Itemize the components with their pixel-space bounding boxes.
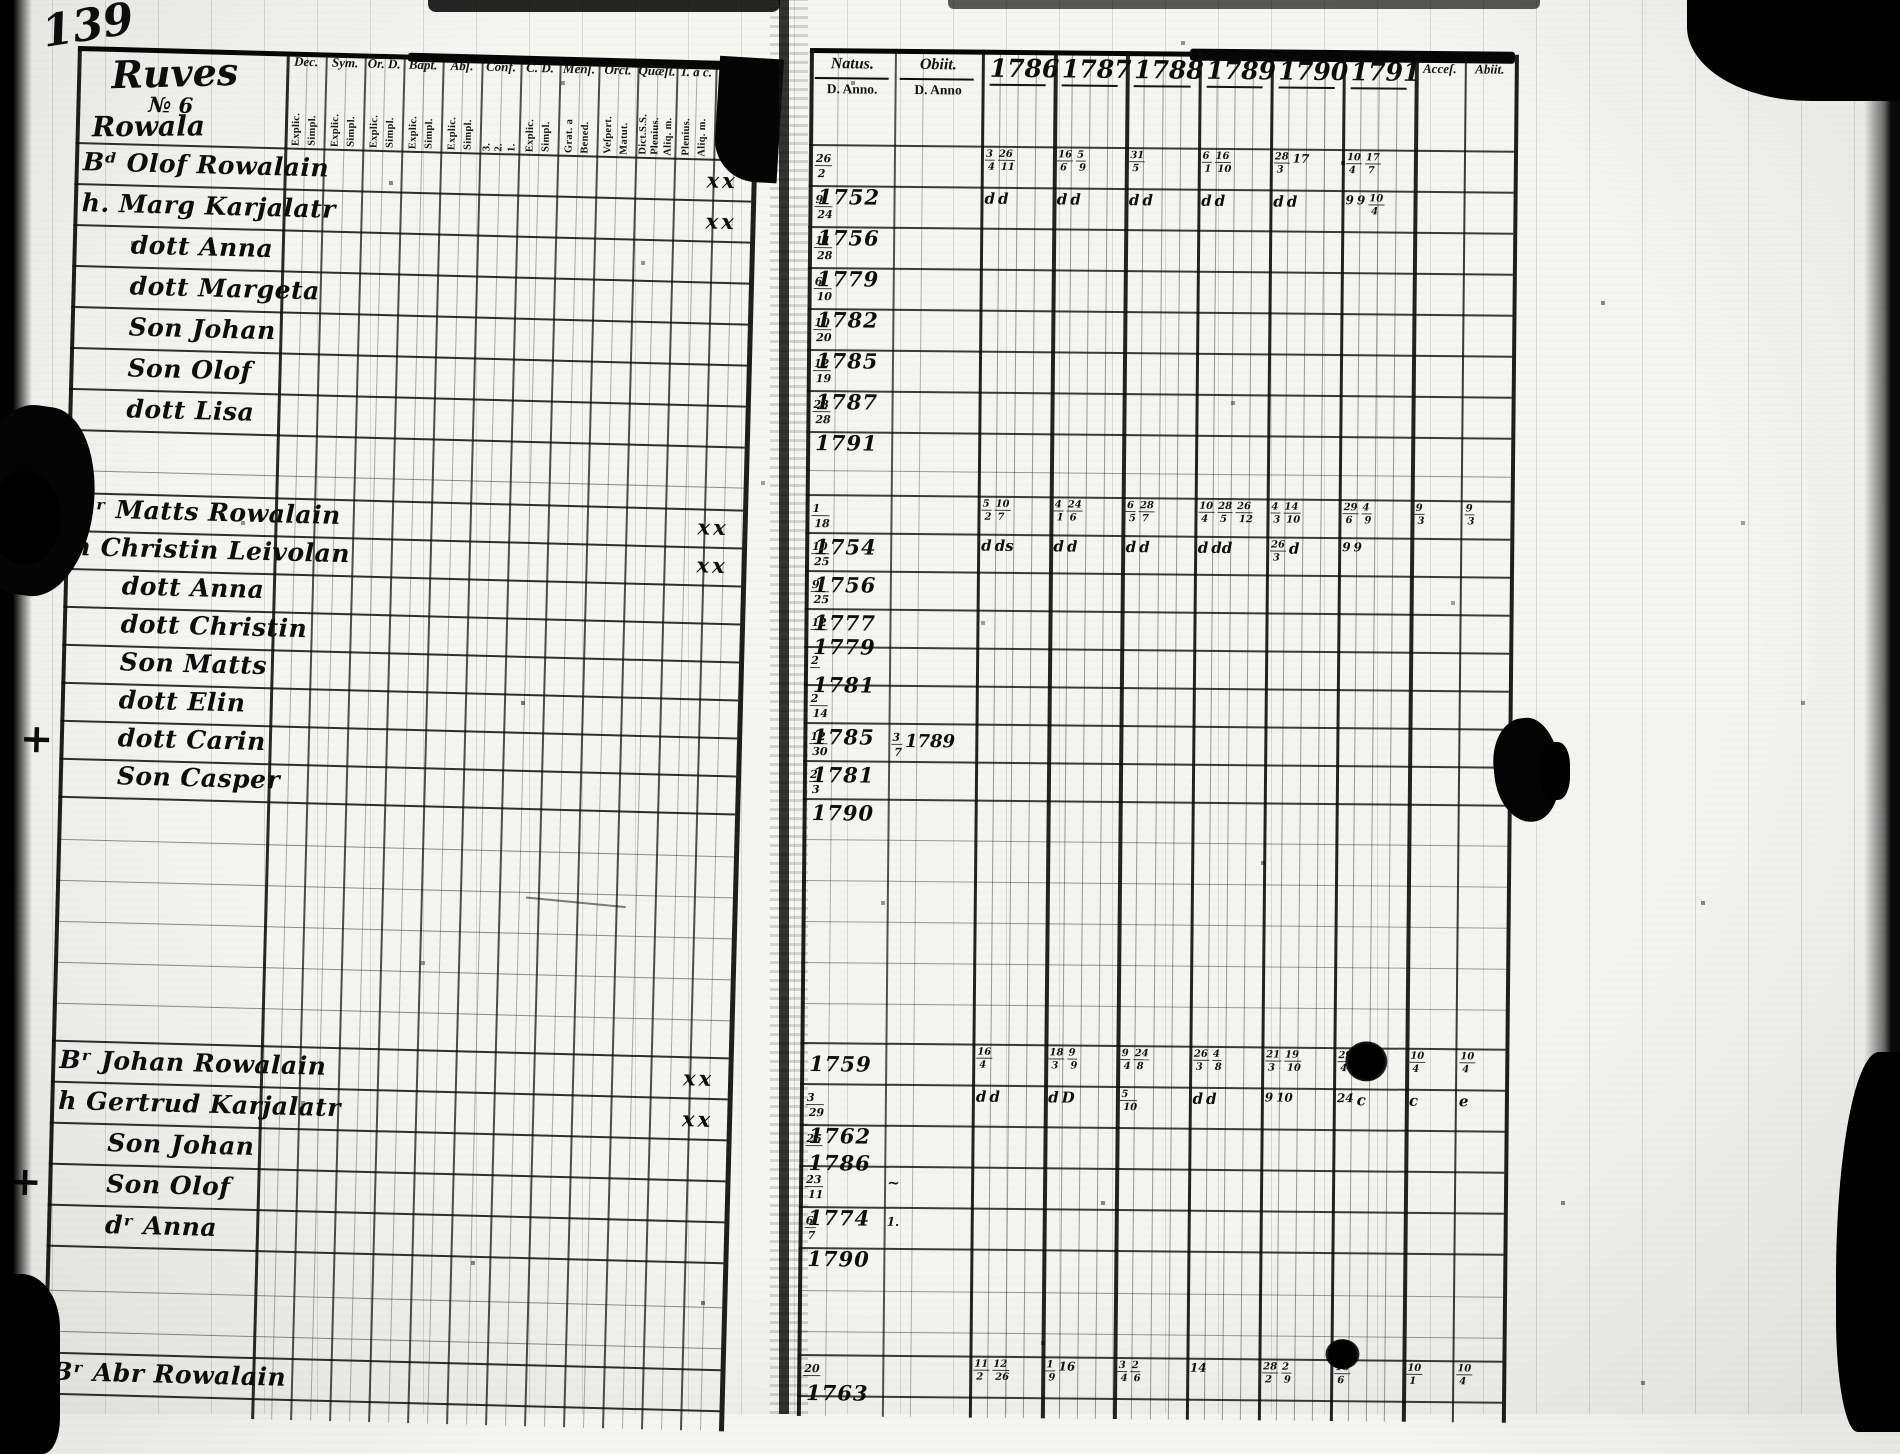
mark-fraction: 1610 <box>1214 151 1231 175</box>
grid-vline <box>388 55 425 1423</box>
column-subheader: 3. <box>481 142 492 151</box>
grid-vline <box>1023 50 1037 1418</box>
mark-fraction: 104 <box>1456 1363 1472 1387</box>
abiit-cell: e <box>1459 1092 1503 1110</box>
mark-fraction-top: 10 <box>1198 501 1214 513</box>
mark-fraction-top: 12 <box>992 1359 1009 1371</box>
abiit-header: Abiit. <box>1465 61 1515 77</box>
ditto-mark: d <box>1206 1090 1217 1108</box>
natus-date: 201763 <box>803 1362 879 1406</box>
mark-fraction: 2612 <box>1236 501 1253 525</box>
grid-vline <box>1041 50 1058 1418</box>
mark-fraction: 1128 <box>814 234 833 262</box>
ditto-mark: c <box>1409 1092 1418 1110</box>
mark-year: 1789 <box>905 731 955 752</box>
thumb-shadow-inner <box>0 470 60 565</box>
ditto-mark: c <box>1357 1091 1366 1109</box>
grid-vline <box>329 54 366 1422</box>
mark-fraction: 610 <box>814 275 833 303</box>
year-cell-1790: 431410 <box>1270 501 1334 525</box>
mark-fraction: 329 <box>806 1091 825 1119</box>
mark-fraction-bottom: 1 <box>1057 512 1064 523</box>
mark-fraction-bottom: 19 <box>816 372 831 385</box>
mark-fraction-bottom: 24 <box>817 208 832 221</box>
mark: 9 <box>1342 540 1350 554</box>
mark-fraction-bottom: 5 <box>1220 513 1233 524</box>
entry-name: dott Anna <box>130 230 273 263</box>
ditto-mark: d <box>1273 192 1284 210</box>
grid-vline <box>1005 50 1019 1418</box>
column-subheader: Grat. a <box>563 119 575 153</box>
mark-fraction-bottom: 11 <box>808 1188 823 1201</box>
entry-name: dott Elin <box>119 685 246 717</box>
mark-fraction: 924 <box>814 193 833 221</box>
mark-fraction-bottom: 6 <box>1134 1373 1141 1384</box>
obiit-anno-subheader: D. Anno <box>895 82 982 99</box>
grid-hline <box>56 880 733 899</box>
entry-name: Bʳ Matts Rowalain <box>74 494 342 530</box>
mark-fraction-top: 9 <box>1067 1048 1077 1060</box>
mark-fraction-top: 1 <box>812 502 830 516</box>
ditto-mark: e <box>1459 1092 1469 1110</box>
year-cell-1787: 18399 <box>1048 1047 1112 1071</box>
natus-date: 231790 <box>809 768 886 825</box>
mark-fraction-bottom: 10 <box>1287 1062 1301 1073</box>
mark-fraction-top: 16 <box>976 1047 992 1059</box>
column-subheader: Explic. <box>290 112 302 146</box>
grid-hline <box>68 429 745 449</box>
mark: 9 <box>1345 193 1353 207</box>
mark-fraction: 48 <box>1212 1049 1222 1073</box>
acces-header: Acceſ. <box>1415 61 1465 77</box>
mark-fraction: 164 <box>976 1047 992 1071</box>
mark: 10 <box>1276 1091 1293 1105</box>
right-page: Natus. Obiit. D. Anno. D. Anno Acceſ. Ab… <box>797 48 1515 1423</box>
entry-name: Bᵈ Olof Rowalain <box>83 147 330 182</box>
mark-fraction-bottom: 20 <box>816 331 831 344</box>
grid-vline <box>1077 51 1091 1419</box>
mark-fraction-bottom: 4 <box>979 1059 992 1070</box>
mark-fraction-bottom: 7 <box>808 1229 816 1242</box>
mark-fraction-bottom: 4 <box>1462 1064 1475 1075</box>
ditto-mark: ~ <box>887 1174 900 1192</box>
mark-fraction: 510 <box>1120 1089 1137 1113</box>
mark-fraction-top: 10 <box>1368 193 1384 205</box>
column-subheader: Simpl. <box>346 116 358 147</box>
mark-fraction-top: 26 <box>1270 539 1286 551</box>
grid-vline <box>1452 54 1467 1422</box>
mark-fraction-top: 26 <box>815 152 832 166</box>
mark-fraction: 41 <box>1054 499 1064 523</box>
natus-header: Natus. <box>810 55 895 74</box>
entry-name: dʳ Anna <box>105 1210 218 1242</box>
mark-fraction-bottom: 2 <box>976 1371 989 1382</box>
grid-vline <box>660 62 697 1430</box>
mark-fraction-top: 25 <box>805 1132 822 1146</box>
grid-vline <box>544 59 581 1427</box>
mark-fraction-top: 24 <box>1134 1048 1150 1060</box>
column-subheader: Dict.S.S. <box>637 114 649 155</box>
mark-fraction: 26 <box>1131 1360 1141 1384</box>
acces-cell: 104 <box>1409 1051 1453 1075</box>
ditto-mark: d <box>1070 191 1081 209</box>
mark-fraction-bottom: 4 <box>1121 1373 1128 1384</box>
year-cell-1787: 1916 <box>1045 1359 1109 1383</box>
mark-fraction: 315 <box>1129 150 1145 174</box>
mark-fraction: 177 <box>1365 152 1381 176</box>
scan-smudge-top-left <box>428 0 780 12</box>
mark-fraction-top: 28 <box>1217 501 1233 513</box>
mark-fraction-bottom: 8 <box>1137 1061 1150 1072</box>
grid-vline <box>1402 54 1419 1422</box>
entry-name: Bʳ Johan Rowalain <box>59 1045 327 1081</box>
year-cell-1789: ddd <box>1198 539 1262 558</box>
grid-vline <box>485 58 522 1426</box>
mark-fraction-top: 3 <box>806 1091 824 1105</box>
acces-cell: 101 <box>1406 1363 1450 1387</box>
grid-vline <box>1095 51 1109 1419</box>
grid-vline <box>1348 53 1362 1421</box>
ditto-mark: d <box>1289 540 1300 558</box>
grid-hline <box>45 1290 722 1309</box>
mark-fraction-top: 17 <box>1365 152 1381 164</box>
mark-fraction-bottom: 7 <box>1142 513 1155 524</box>
mark-fraction: 93 <box>1414 503 1424 527</box>
ditto-mark: d <box>1057 190 1068 208</box>
grid-vline <box>271 52 308 1420</box>
ditto-mark: d <box>1215 192 1226 210</box>
grid-vline <box>1384 54 1398 1422</box>
mark-fraction-bottom: 6 <box>1337 1375 1350 1386</box>
grid-vline <box>1258 52 1275 1420</box>
mark-fraction-top: 4 <box>1270 501 1280 513</box>
mark-fraction-bottom: 4 <box>1371 206 1384 217</box>
year-cell-1788: 315 <box>1129 150 1193 174</box>
entry-name: Bʳ Abr Rowalain <box>51 1357 287 1392</box>
ditto-mark: dd <box>1211 539 1232 557</box>
mark-fraction: 214 <box>810 692 829 720</box>
mark-fraction: 285 <box>1217 501 1233 525</box>
mark-fraction: 248 <box>1134 1048 1150 1072</box>
mark-fraction: 1226 <box>992 1359 1009 1383</box>
mark-fraction-bottom: 10 <box>1123 1102 1137 1113</box>
grid-vline <box>1113 51 1130 1419</box>
mark-fraction-top: 11 <box>973 1359 989 1371</box>
ditto-mark: d <box>1142 191 1153 209</box>
mark: 17 <box>1293 152 1310 166</box>
mark: 9 <box>1354 540 1362 554</box>
mark-fraction: 283 <box>1274 151 1290 175</box>
communion-xx-mark: xx <box>696 552 728 578</box>
mark-fraction-bottom: 30 <box>812 745 827 758</box>
mark-fraction-bottom: 4 <box>1124 1061 1131 1072</box>
year-cell-1789: 26348 <box>1193 1049 1257 1073</box>
column-subheader: Matut. <box>619 122 631 155</box>
ditto-mark: d <box>1198 539 1209 557</box>
grid-vline <box>1294 53 1308 1421</box>
mark-fraction-bottom: 4 <box>1201 513 1214 524</box>
ditto-mark: D <box>1062 1088 1075 1106</box>
grid-vline <box>1185 52 1202 1420</box>
year-cell-1791: 99 <box>1342 540 1406 555</box>
ditto-mark: d <box>1192 1090 1203 1108</box>
mark-fraction: 19 <box>1045 1359 1055 1383</box>
ditto-mark: d <box>981 537 992 555</box>
acces-cell: c <box>1409 1092 1453 1110</box>
mark-fraction: 101 <box>1406 1363 1422 1387</box>
year-cell-1786: 342611 <box>985 149 1049 173</box>
mark-fraction-bottom: 10 <box>1286 514 1300 525</box>
grid-hline <box>43 1393 720 1413</box>
binding-gutter-texture <box>770 0 808 1414</box>
mark-fraction: 263 <box>1193 1049 1209 1073</box>
abiit-cell: 93 <box>1464 503 1508 527</box>
year-cell-1789: 1042852612 <box>1198 501 1262 525</box>
entry-name: dott Margeta <box>129 271 320 305</box>
grid-vline <box>524 59 561 1427</box>
mark-fraction: 287 <box>1139 500 1155 524</box>
year-cell-1788: dd <box>1129 191 1193 210</box>
left-page: Ruves № 6 Rowala Dec.Explic.Simpl.Sym.Ex… <box>42 46 778 1432</box>
mark-fraction-top: 2 <box>1131 1360 1141 1372</box>
natus-date: 671790 <box>804 1214 881 1271</box>
mark: 9 <box>1265 1090 1273 1104</box>
grid-vline <box>1131 51 1145 1419</box>
mark-fraction-top: 9 <box>811 578 829 592</box>
year-cell-1789: dd <box>1192 1090 1256 1109</box>
mark-fraction: 183 <box>1048 1047 1064 1071</box>
mark-fraction-top: 5 <box>1076 150 1086 162</box>
grid-vline <box>719 64 760 1432</box>
mark-fraction-bottom: 9 <box>1070 1060 1077 1071</box>
ink-blot-1790 <box>1325 1339 1359 1369</box>
obiit-header: Obiit. <box>895 56 982 75</box>
mark-fraction-bottom: 3 <box>812 783 820 796</box>
column-subheader: Simpl. <box>385 117 397 148</box>
column-subheader: Explic. <box>329 113 341 147</box>
mark-fraction: 59 <box>1076 150 1086 174</box>
mark-fraction-bottom: 28 <box>817 249 832 262</box>
mark-fraction-bottom: 3 <box>1273 552 1286 563</box>
mark-fraction-top: 29 <box>1343 502 1359 514</box>
mark-fraction: 2611 <box>998 149 1015 173</box>
mark-fraction: 65 <box>1126 500 1136 524</box>
year-cell-1791: 29649 <box>1342 502 1406 526</box>
mark-fraction: 166 <box>1057 149 1073 173</box>
natus-date: 1759 <box>806 1050 882 1077</box>
year-cell-1787: dd <box>1053 537 1117 556</box>
abiit-cell: 104 <box>1459 1051 1503 1075</box>
mark-fraction-bottom: 6 <box>1070 512 1083 523</box>
year-cell-1787: 16659 <box>1057 149 1121 173</box>
mark-fraction: 112 <box>973 1359 989 1383</box>
entry-name: dott Anna <box>122 571 265 604</box>
mark-fraction-top: 2 <box>810 692 828 706</box>
mark-fraction-bottom: 2 <box>1265 1374 1278 1385</box>
mark-fraction: 104 <box>1409 1051 1425 1075</box>
mark: 14 <box>1190 1361 1207 1375</box>
mark-fraction-top: 10 <box>1409 1051 1425 1063</box>
grid-vline <box>1276 53 1290 1421</box>
grid-vline <box>446 57 483 1425</box>
ditto-mark: d <box>1053 537 1064 555</box>
mark-fraction: 49 <box>1361 502 1371 526</box>
grid-vline <box>505 58 542 1426</box>
mark-fraction: 99 <box>1067 1048 1077 1072</box>
mark-fraction-top: 10 <box>1406 1363 1422 1375</box>
mark-fraction-bottom: 4 <box>1349 165 1362 176</box>
natus-date: 251786 <box>805 1132 881 1176</box>
mark-fraction-top: 6 <box>1202 151 1212 163</box>
grid-vline <box>1222 52 1236 1420</box>
mark-fraction: 104 <box>1368 193 1384 217</box>
margin-cross: + <box>19 715 54 763</box>
year-cell-1788: 510 <box>1120 1089 1184 1113</box>
mark-fraction-bottom: 3 <box>1417 515 1424 526</box>
mark-fraction: 1410 <box>1283 502 1300 526</box>
mark-fraction: 37 <box>891 731 902 759</box>
grid-hline <box>44 1331 721 1350</box>
mark-fraction-top: 6 <box>1126 500 1136 512</box>
entry-name: Son Casper <box>117 761 281 794</box>
year-cell-1786: 1121226 <box>973 1359 1037 1383</box>
mark-fraction-top: 9 <box>1121 1048 1131 1060</box>
mark-fraction: 29 <box>1281 1362 1291 1386</box>
mark-fraction-top: 14 <box>1283 502 1300 514</box>
mark-fraction-top: 12 <box>810 616 827 630</box>
obiit-date: 371789 <box>891 731 971 759</box>
mark: 1. <box>887 1215 900 1229</box>
communion-xx-mark: xx <box>683 1065 715 1091</box>
mark-fraction-top: 28 <box>1262 1361 1278 1373</box>
mark-fraction: 25 <box>805 1132 822 1146</box>
mark-fraction-bottom: 28 <box>815 413 830 426</box>
mark-fraction: 34 <box>1118 1360 1128 1384</box>
abiit-cell: 104 <box>1456 1363 1500 1387</box>
year-cell-1790: 28317 <box>1274 151 1338 175</box>
mark-fraction: 107 <box>994 499 1010 523</box>
mark-fraction-bottom: 4 <box>1412 1063 1425 1074</box>
year-cell-1790: dd <box>1273 192 1337 211</box>
mark-fraction-top: 18 <box>1048 1047 1064 1059</box>
natus-year: 1790 <box>807 1246 870 1272</box>
entry-name: Son Johan <box>107 1128 255 1161</box>
mark-fraction-top: 4 <box>1054 499 1064 511</box>
entry-name: dott Lisa <box>126 394 255 426</box>
mark-fraction-bottom: 1 <box>1409 1375 1422 1386</box>
mark-fraction-top: 10 <box>1346 152 1362 164</box>
mark-fraction-bottom: 3 <box>1051 1060 1064 1071</box>
grid-vline <box>368 55 405 1423</box>
ditto-mark: d <box>1201 192 1212 210</box>
scan-blot-right-lower <box>1836 1052 1900 1432</box>
year-cell-1788: 3426 <box>1118 1360 1182 1384</box>
mark-fraction: 246 <box>1067 499 1083 523</box>
mark-fraction-top: 26 <box>1236 501 1253 513</box>
year-cell-1787: 41246 <box>1054 499 1118 523</box>
grid-hline <box>47 1245 724 1265</box>
grid-vline <box>602 61 639 1429</box>
mark-fraction: 2 <box>810 654 820 668</box>
mark-fraction-bottom: 10 <box>1217 163 1231 174</box>
grid-vline <box>290 52 327 1420</box>
entry-name: h. Marg Karjalatr <box>82 188 337 224</box>
mark-fraction-bottom: 18 <box>814 517 829 530</box>
year-cell-1786: dd <box>976 1088 1040 1107</box>
mark-fraction-top: 9 <box>1415 503 1425 515</box>
mark-fraction-bottom: 4 <box>988 161 995 172</box>
column-subheader: Aliq. m. <box>662 117 674 156</box>
mark-fraction-top: 12 <box>809 730 827 744</box>
mark-fraction: 1230 <box>809 730 828 758</box>
ditto-mark: d <box>984 190 995 208</box>
obiit-date: 1. <box>887 1215 967 1230</box>
column-subheader: Simpl. <box>424 118 436 149</box>
mark-fraction-top: 3 <box>1118 1360 1128 1372</box>
natus-year: 1790 <box>812 800 875 826</box>
mark-fraction: 104 <box>1346 152 1362 176</box>
year-cell-1791: 104177 <box>1346 152 1410 176</box>
mark-fraction-top: 4 <box>1361 502 1371 514</box>
ink-blot-1791 <box>1345 1041 1387 1081</box>
mark-fraction-top: 10 <box>1459 1051 1475 1063</box>
mark-fraction: 34 <box>985 149 995 173</box>
village-name: Rowala <box>92 109 205 143</box>
column-subheader: Plenius. <box>680 118 692 156</box>
natus-year: 1791 <box>815 430 878 456</box>
grid-vline <box>621 61 658 1429</box>
entry-name: Son Olof <box>127 353 252 385</box>
year-cell-1787: dd <box>1057 190 1121 209</box>
communion-xx-mark: xx <box>682 1106 714 1132</box>
mark-fraction-top: 6 <box>814 275 832 289</box>
year-cell-1786: dd <box>984 190 1048 209</box>
mark-fraction-top: 10 <box>1456 1363 1472 1375</box>
mark-fraction-bottom: 25 <box>814 593 829 606</box>
grid-vline <box>427 56 464 1424</box>
mark-fraction-top: 12 <box>813 357 831 371</box>
grid-vline <box>699 63 736 1431</box>
mark-fraction-bottom: 10 <box>817 290 832 303</box>
mark-fraction-top: 26 <box>998 149 1015 161</box>
mark-fraction-bottom: 3 <box>1467 516 1474 527</box>
mark: 16 <box>1058 1359 1075 1373</box>
mark: 9 <box>1357 193 1365 207</box>
obiit-underline <box>900 78 974 80</box>
mark-fraction-bottom: 3 <box>1268 1062 1281 1073</box>
mark-fraction-top: 3 <box>891 731 902 745</box>
grid-vline <box>1312 53 1326 1421</box>
column-subheader: Simpl. <box>541 121 553 152</box>
year-cell-1788: 65287 <box>1126 500 1190 524</box>
mark-fraction-bottom: 9 <box>1048 1372 1055 1383</box>
mark-fraction: 104 <box>1459 1051 1475 1075</box>
column-subheader: Aliq. m. <box>697 118 709 157</box>
grid-hline <box>55 921 732 940</box>
grid-vline <box>1059 51 1073 1419</box>
entry-name: dott Carin <box>118 723 267 756</box>
mark-fraction: 52 <box>981 499 991 523</box>
grid-vline <box>1149 51 1163 1419</box>
year-cell-1789: 14 <box>1190 1361 1254 1376</box>
mark-fraction-top: 10 <box>811 540 829 554</box>
year-cell-1787: dD <box>1048 1088 1112 1107</box>
mark-fraction-top: 5 <box>982 499 992 511</box>
year-cell-1786: 164 <box>976 1047 1040 1071</box>
mark-fraction-bottom: 14 <box>813 707 828 720</box>
mark-fraction-top: 16 <box>1214 151 1231 163</box>
mark-fraction-bottom: 5 <box>1129 513 1136 524</box>
